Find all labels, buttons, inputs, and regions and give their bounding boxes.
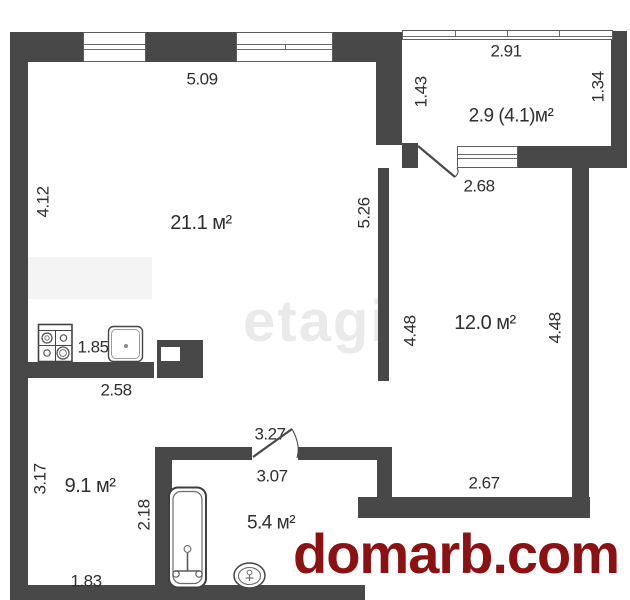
window-balcony-block bbox=[457, 146, 518, 168]
dim-bath-width: 3.07 bbox=[256, 468, 287, 485]
dim-bath-door: 3.27 bbox=[254, 426, 285, 443]
floor-plan: etagi 5.09 4.12 21.1 м² 2.91 1.43 1.34 2… bbox=[0, 0, 630, 600]
dim-balcony-right: 1.34 bbox=[590, 71, 607, 102]
wall-balcony-right bbox=[611, 31, 627, 146]
room-label-room9: 9.1 м² bbox=[65, 476, 116, 496]
dim-bedroom-width: 2.67 bbox=[468, 475, 499, 492]
wall-bath-top bbox=[155, 447, 252, 460]
wall-left bbox=[10, 32, 28, 600]
room-label-living: 21.1 м² bbox=[170, 213, 231, 233]
wall-hall-right bbox=[377, 460, 392, 497]
window-balcony-glazing bbox=[402, 30, 613, 40]
dim-bedroom-left: 4.48 bbox=[402, 315, 419, 346]
dim-living-left: 4.12 bbox=[35, 186, 52, 217]
wall-bottom bbox=[10, 585, 365, 600]
dim-hall-height: 5.26 bbox=[356, 197, 373, 228]
shaft-opening bbox=[161, 347, 180, 361]
wall-kitchen-counter bbox=[28, 362, 154, 378]
dim-kitchen-gap: 1.85 bbox=[77, 339, 108, 356]
room-label-bedroom: 12.0 м² bbox=[454, 313, 515, 333]
wall-bottom-right bbox=[358, 497, 590, 518]
wall-right bbox=[572, 168, 589, 518]
stove-icon bbox=[39, 325, 73, 362]
wall-bedroom-left bbox=[378, 168, 389, 381]
dim-tub-length: 1.88 bbox=[175, 506, 191, 535]
dim-counter-width: 2.58 bbox=[100, 382, 131, 399]
window-living-1 bbox=[83, 32, 146, 62]
site-watermark: domarb.com bbox=[293, 526, 619, 582]
dim-room9-width: 1.83 bbox=[70, 573, 101, 590]
room-label-bath: 5.4 м² bbox=[247, 514, 295, 533]
sink-icon bbox=[109, 327, 143, 362]
wall-top-1 bbox=[10, 32, 83, 62]
window-living-2 bbox=[236, 32, 333, 62]
agency-watermark: etagi bbox=[243, 293, 388, 351]
dim-balcony-door: 2.68 bbox=[463, 178, 494, 195]
dim-room9-height: 3.17 bbox=[32, 463, 49, 494]
dim-balcony-left: 1.43 bbox=[413, 76, 430, 107]
wall-bath-left bbox=[155, 447, 172, 600]
room-label-balcony: 2.9 (4.1)м² bbox=[469, 107, 554, 126]
dim-bedroom-right: 4.48 bbox=[547, 312, 564, 343]
balcony-door-swing-icon bbox=[418, 146, 458, 177]
wall-balcony-door-jamb bbox=[402, 143, 418, 168]
wall-kitchen-shaft bbox=[157, 340, 203, 378]
wall-balcony-bottom bbox=[518, 146, 627, 168]
dim-bath-left: 2.18 bbox=[136, 499, 153, 530]
bathtub-icon bbox=[169, 488, 206, 588]
wall-balcony-divider bbox=[376, 32, 402, 145]
wall-hall-top bbox=[298, 447, 392, 460]
dim-living-top: 5.09 bbox=[186, 71, 217, 88]
dim-balcony-width: 2.91 bbox=[490, 43, 521, 60]
kitchen-zone-highlight bbox=[28, 257, 152, 299]
wall-top-2 bbox=[146, 32, 236, 62]
